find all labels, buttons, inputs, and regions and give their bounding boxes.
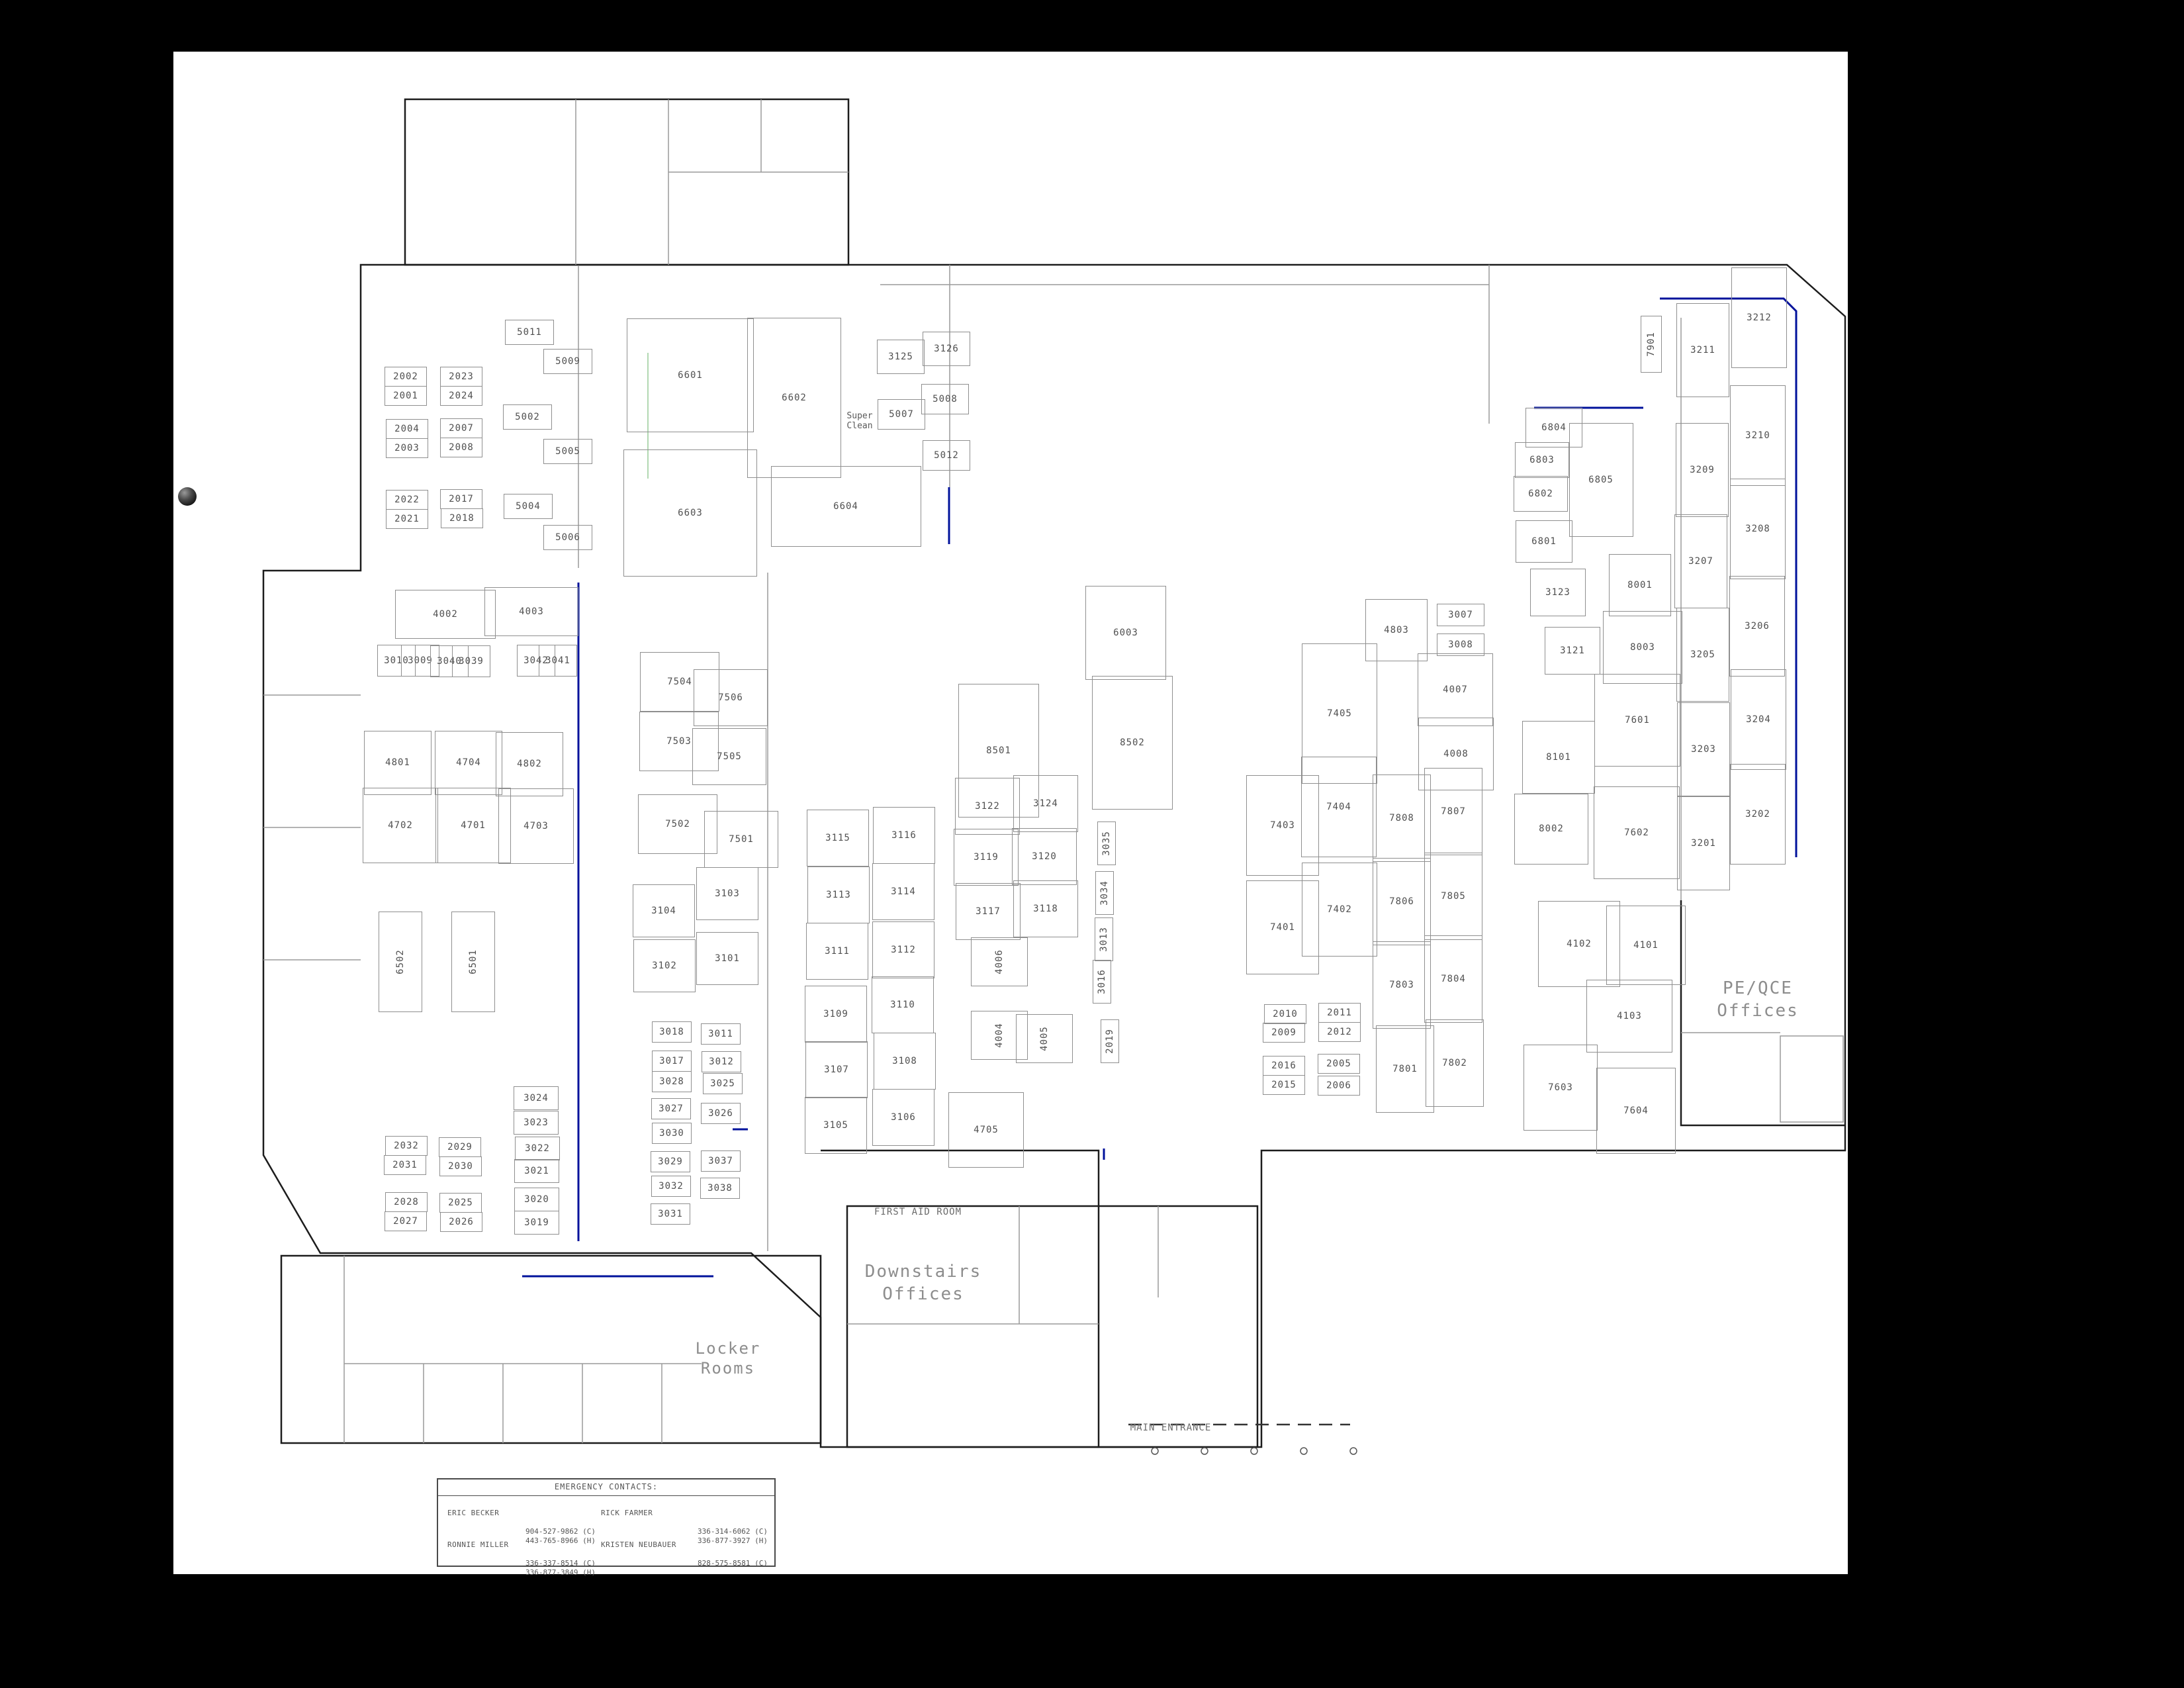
room-3026: 3026: [701, 1103, 741, 1124]
room-3031: 3031: [651, 1203, 690, 1225]
room-8501: 8501: [958, 684, 1039, 818]
room-2023: 2023: [440, 367, 482, 387]
room-7603: 7603: [1524, 1045, 1598, 1131]
room-6601: 6601: [627, 318, 754, 432]
room-3202: 3202: [1730, 764, 1786, 865]
room-8002: 8002: [1514, 794, 1588, 865]
room-6502: 6502: [379, 912, 422, 1012]
room-3024: 3024: [514, 1086, 559, 1110]
room-4005: 4005: [1016, 1014, 1073, 1063]
room-3206: 3206: [1729, 576, 1785, 677]
room-3106: 3106: [872, 1089, 934, 1146]
room-8001: 8001: [1609, 554, 1671, 616]
room-8101: 8101: [1522, 721, 1595, 794]
room-4103: 4103: [1586, 980, 1672, 1053]
room-5011: 5011: [505, 320, 554, 345]
room-3020: 3020: [514, 1188, 559, 1211]
room-3103: 3103: [696, 867, 758, 920]
room-7901: 7901: [1641, 316, 1662, 373]
room-2012: 2012: [1318, 1022, 1361, 1042]
room-3027: 3027: [651, 1098, 691, 1119]
room-3101: 3101: [696, 932, 758, 985]
room-3029: 3029: [651, 1151, 690, 1172]
room-3039: 3039: [452, 645, 490, 677]
room-3114: 3114: [872, 863, 934, 920]
room-4002: 4002: [395, 590, 496, 639]
room-3108: 3108: [874, 1033, 936, 1090]
room-3109: 3109: [805, 986, 867, 1043]
room-3209: 3209: [1676, 423, 1729, 517]
room-2008: 2008: [440, 438, 482, 457]
room-3016: 3016: [1093, 960, 1111, 1004]
room-3008: 3008: [1437, 633, 1484, 656]
room-7808: 7808: [1373, 774, 1431, 862]
room-6805: 6805: [1569, 423, 1633, 537]
contact-name: RICK FARMER: [601, 1509, 653, 1517]
room-5012: 5012: [923, 440, 970, 471]
room-6803: 6803: [1515, 442, 1569, 478]
zone-label-locker-rooms: Locker Rooms: [696, 1338, 761, 1378]
room-3112: 3112: [872, 921, 934, 978]
room-7802: 7802: [1426, 1019, 1484, 1107]
room-2017: 2017: [440, 489, 482, 509]
desktop-background: { "document": { "type": "facility-floor-…: [0, 0, 2184, 1688]
room-3208: 3208: [1730, 479, 1786, 579]
room-8502: 8502: [1092, 676, 1173, 810]
room-8003: 8003: [1603, 611, 1682, 684]
room-5004: 5004: [504, 494, 553, 519]
room-3030: 3030: [652, 1123, 692, 1144]
room-3203: 3203: [1677, 702, 1730, 796]
contact-phone: 336-337-8514 (C)336-877-3849 (H): [525, 1540, 596, 1596]
room-2002: 2002: [385, 367, 427, 387]
room-7501: 7501: [704, 811, 778, 868]
room-4705: 4705: [948, 1092, 1024, 1168]
room-3205: 3205: [1676, 608, 1729, 702]
room-2001: 2001: [385, 386, 427, 406]
room-3105: 3105: [805, 1097, 867, 1154]
zone-label-super-clean: Super Clean: [846, 411, 872, 431]
room-5005: 5005: [543, 439, 592, 464]
room-7402: 7402: [1302, 863, 1377, 957]
room-3115: 3115: [807, 810, 869, 867]
room-2031: 2031: [384, 1155, 426, 1175]
room-3123: 3123: [1530, 569, 1586, 616]
room-3211: 3211: [1676, 303, 1729, 397]
room-3025: 3025: [703, 1073, 743, 1094]
room-3041: 3041: [539, 645, 577, 677]
room-3110: 3110: [872, 976, 934, 1033]
room-7805: 7805: [1424, 853, 1482, 940]
room-2019: 2019: [1101, 1019, 1119, 1063]
room-7806: 7806: [1373, 858, 1431, 945]
room-3126: 3126: [923, 332, 970, 366]
zone-label-first-aid-room: FIRST AID ROOM: [874, 1207, 962, 1217]
room-2006: 2006: [1318, 1076, 1360, 1096]
room-3121: 3121: [1545, 627, 1600, 675]
room-2025: 2025: [439, 1193, 482, 1213]
room-2004: 2004: [386, 419, 428, 439]
room-6801: 6801: [1516, 520, 1572, 563]
sphere-marker-icon: [178, 487, 197, 506]
room-2032: 2032: [385, 1136, 428, 1156]
room-layer: 2002200120042003202220212023202420072008…: [0, 0, 2184, 1688]
room-2009: 2009: [1263, 1023, 1305, 1043]
room-2027: 2027: [385, 1211, 427, 1231]
room-3021: 3021: [514, 1159, 559, 1183]
room-5006: 5006: [543, 525, 592, 550]
room-2028: 2028: [385, 1192, 428, 1212]
room-3207: 3207: [1674, 514, 1727, 608]
room-3119: 3119: [954, 829, 1019, 886]
zone-label-downstairs-offices: Downstairs Offices: [865, 1260, 982, 1305]
room-4801: 4801: [364, 731, 432, 795]
room-3017: 3017: [652, 1051, 692, 1072]
room-7803: 7803: [1373, 941, 1431, 1029]
room-3102: 3102: [633, 939, 696, 992]
zone-label-peqce-offices: PE/QCE Offices: [1717, 977, 1799, 1022]
room-4003: 4003: [484, 587, 578, 636]
room-3028: 3028: [652, 1071, 692, 1092]
room-2022: 2022: [386, 490, 428, 510]
room-3116: 3116: [873, 807, 935, 864]
room-2030: 2030: [439, 1156, 482, 1176]
room-5008: 5008: [921, 384, 969, 414]
room-2029: 2029: [439, 1137, 481, 1157]
room-5009: 5009: [543, 349, 592, 374]
room-3212: 3212: [1731, 267, 1787, 368]
contact-name: ERIC BECKER: [447, 1509, 499, 1517]
room-3013: 3013: [1095, 917, 1113, 961]
room-3204: 3204: [1731, 669, 1786, 770]
zone-label-main-entrance: MAIN ENTRANCE: [1130, 1423, 1212, 1433]
room-6501: 6501: [451, 912, 495, 1012]
room-4704: 4704: [435, 731, 502, 795]
room-2007: 2007: [440, 418, 482, 438]
room-4101: 4101: [1606, 906, 1686, 985]
room-3118: 3118: [1013, 880, 1078, 937]
room-3012: 3012: [702, 1051, 741, 1072]
room-2026: 2026: [440, 1212, 482, 1232]
room-5007: 5007: [878, 399, 925, 430]
room-6003: 6003: [1085, 586, 1166, 680]
contact-name: RONNIE MILLER: [447, 1540, 509, 1549]
room-2011: 2011: [1318, 1003, 1361, 1023]
room-4007: 4007: [1418, 653, 1493, 726]
room-7804: 7804: [1424, 935, 1482, 1023]
contact-name: KRISTEN NEUBAUER: [601, 1540, 676, 1549]
room-4006: 4006: [971, 937, 1028, 986]
room-3018: 3018: [652, 1021, 692, 1043]
room-3113: 3113: [807, 867, 870, 923]
room-4702: 4702: [363, 788, 438, 863]
room-3111: 3111: [806, 923, 868, 980]
room-3011: 3011: [701, 1023, 741, 1045]
room-3019: 3019: [514, 1211, 559, 1235]
room-7807: 7807: [1424, 768, 1482, 855]
room-2021: 2021: [386, 509, 428, 529]
room-3120: 3120: [1012, 828, 1077, 885]
room-3210: 3210: [1730, 385, 1786, 486]
room-2018: 2018: [441, 508, 483, 528]
room-3117: 3117: [956, 883, 1021, 940]
room-3201: 3201: [1677, 796, 1730, 890]
emergency-contacts-table: EMERGENCY CONTACTS: ERIC BECKER 904-527-…: [437, 1478, 776, 1567]
room-7505: 7505: [692, 728, 766, 785]
contact-phone: 828-575-8581 (C): [698, 1540, 768, 1587]
room-7602: 7602: [1594, 786, 1680, 879]
room-6603: 6603: [623, 449, 757, 577]
room-2015: 2015: [1263, 1075, 1305, 1095]
room-3104: 3104: [633, 884, 695, 937]
room-3032: 3032: [651, 1176, 691, 1197]
room-7604: 7604: [1596, 1068, 1676, 1154]
room-3035: 3035: [1097, 821, 1116, 865]
room-7601: 7601: [1594, 674, 1680, 767]
room-6602: 6602: [747, 318, 841, 478]
room-6604: 6604: [771, 466, 921, 547]
room-3037: 3037: [701, 1150, 741, 1172]
room-2010: 2010: [1264, 1004, 1306, 1024]
room-3007: 3007: [1437, 604, 1484, 626]
room-4703: 4703: [498, 788, 574, 864]
table-divider: [438, 1495, 774, 1496]
room-7404: 7404: [1301, 757, 1377, 857]
room-2003: 2003: [386, 438, 428, 458]
room-2016: 2016: [1263, 1056, 1305, 1076]
room-2024: 2024: [440, 386, 482, 406]
room-4802: 4802: [496, 732, 563, 796]
room-5002: 5002: [503, 404, 552, 430]
emergency-contacts-title: EMERGENCY CONTACTS:: [438, 1482, 774, 1491]
room-2005: 2005: [1318, 1054, 1360, 1074]
room-6802: 6802: [1514, 476, 1568, 512]
room-3107: 3107: [805, 1041, 868, 1098]
room-3034: 3034: [1095, 871, 1114, 915]
room-3023: 3023: [514, 1111, 559, 1135]
room-3125: 3125: [877, 340, 925, 374]
room-3038: 3038: [700, 1178, 740, 1199]
room-3022: 3022: [515, 1137, 560, 1160]
